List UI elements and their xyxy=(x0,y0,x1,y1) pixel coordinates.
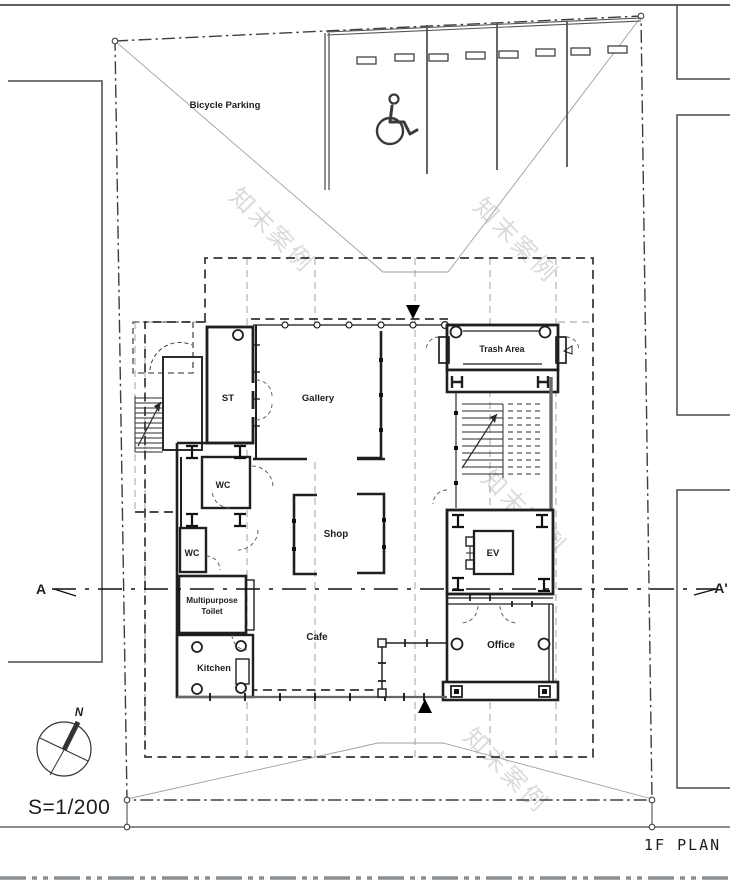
section-marker-a-prime: A' xyxy=(714,580,727,596)
watermark-text: 知末案例 xyxy=(458,723,553,818)
drawing-title: 1F PLAN xyxy=(644,836,721,854)
label-cafe: Cafe xyxy=(306,632,328,643)
section-line xyxy=(52,589,718,596)
floor-plan-sheet: 知末案例 知末案例 知末案例 知末案例 xyxy=(0,0,730,890)
label-multipurpose-toilet-2: Toilet xyxy=(201,607,222,616)
label-shop: Shop xyxy=(324,529,349,540)
label-st: ST xyxy=(222,393,234,404)
label-office: Office xyxy=(487,640,515,651)
north-arrow-icon xyxy=(37,722,91,776)
label-trash-area: Trash Area xyxy=(479,344,524,354)
label-wc-lower: WC xyxy=(185,548,200,558)
entrance-arrow-down-icon xyxy=(406,305,420,319)
parking-area xyxy=(325,18,641,190)
label-multipurpose-toilet-1: Multipurpose xyxy=(186,596,238,605)
bicycle-parking-label: Bicycle Parking xyxy=(190,100,261,111)
label-kitchen: Kitchen xyxy=(197,663,231,673)
entry-vestibule xyxy=(378,639,447,697)
wheelchair-icon xyxy=(377,95,417,145)
watermark-text: 知末案例 xyxy=(468,193,563,288)
label-gallery: Gallery xyxy=(302,393,335,404)
watermark-group: 知末案例 知末案例 知末案例 知末案例 xyxy=(224,183,571,818)
scale-label: S=1/200 xyxy=(28,796,110,819)
label-ev: EV xyxy=(487,548,500,559)
section-marker-a: A xyxy=(36,581,46,597)
label-wc-upper: WC xyxy=(216,480,231,490)
floor-plan-drawing: 知末案例 知末案例 知末案例 知末案例 xyxy=(0,0,730,890)
compass-north-label: N xyxy=(75,707,84,719)
wheel-stops xyxy=(357,46,627,64)
watermark-text: 知末案例 xyxy=(224,183,319,278)
entrance-arrow-up-icon xyxy=(418,699,432,713)
